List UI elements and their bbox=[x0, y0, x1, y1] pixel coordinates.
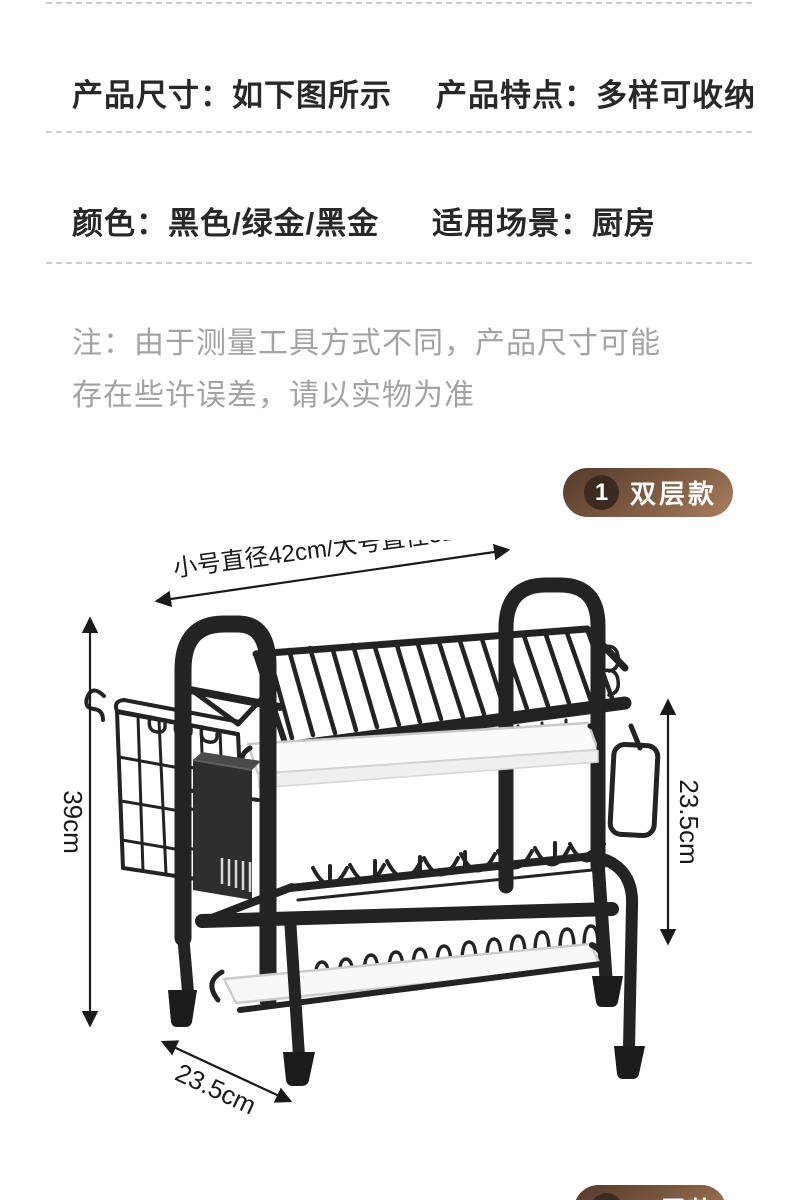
dashed-divider-bottom bbox=[46, 262, 752, 264]
dimension-annotations: 小号直径42cm/大号直径52cm 39cm 23.5cm 23.5cm bbox=[58, 540, 704, 1120]
dashed-divider-middle bbox=[46, 131, 752, 133]
style-badge-double-layer: 1 双层款 bbox=[563, 468, 733, 517]
dimension-label-right-depth: 23.5cm bbox=[674, 779, 704, 864]
rack-board-holder bbox=[610, 726, 659, 836]
measurement-note-line2: 存在些许误差，请以实物为准 bbox=[72, 370, 475, 414]
dashed-divider-top bbox=[46, 2, 752, 4]
badge-number-circle: 1 bbox=[584, 475, 619, 510]
product-spec-page: 产品尺寸：如下图所示 产品特点：多样可收纳 颜色：黑色/绿金/黑金 适用场景：厨… bbox=[0, 0, 790, 1200]
spec-usage-scene: 适用场景：厨房 bbox=[432, 198, 656, 243]
rack-foot-left-rear bbox=[168, 990, 197, 1027]
spec-product-feature: 产品特点：多样可收纳 bbox=[436, 70, 756, 115]
utensil-holder bbox=[186, 752, 261, 900]
badge-label: 双层款 bbox=[630, 474, 717, 511]
spec-color: 颜色：黑色/绿金/黑金 bbox=[72, 198, 379, 243]
rack-foot-front-left bbox=[283, 1052, 315, 1086]
top-drain-tray bbox=[242, 723, 600, 788]
dimension-label-height: 39cm bbox=[58, 790, 88, 854]
spec-product-size: 产品尺寸：如下图所示 bbox=[72, 70, 392, 115]
rack-foot-right-rear bbox=[592, 976, 623, 1007]
rack-foot-front-right bbox=[614, 1046, 645, 1079]
measurement-note-line1: 注：由于测量工具方式不同，产品尺寸可能 bbox=[72, 318, 661, 362]
dish-rack-illustration: 小号直径42cm/大号直径52cm 39cm 23.5cm 23.5cm bbox=[0, 540, 790, 1200]
